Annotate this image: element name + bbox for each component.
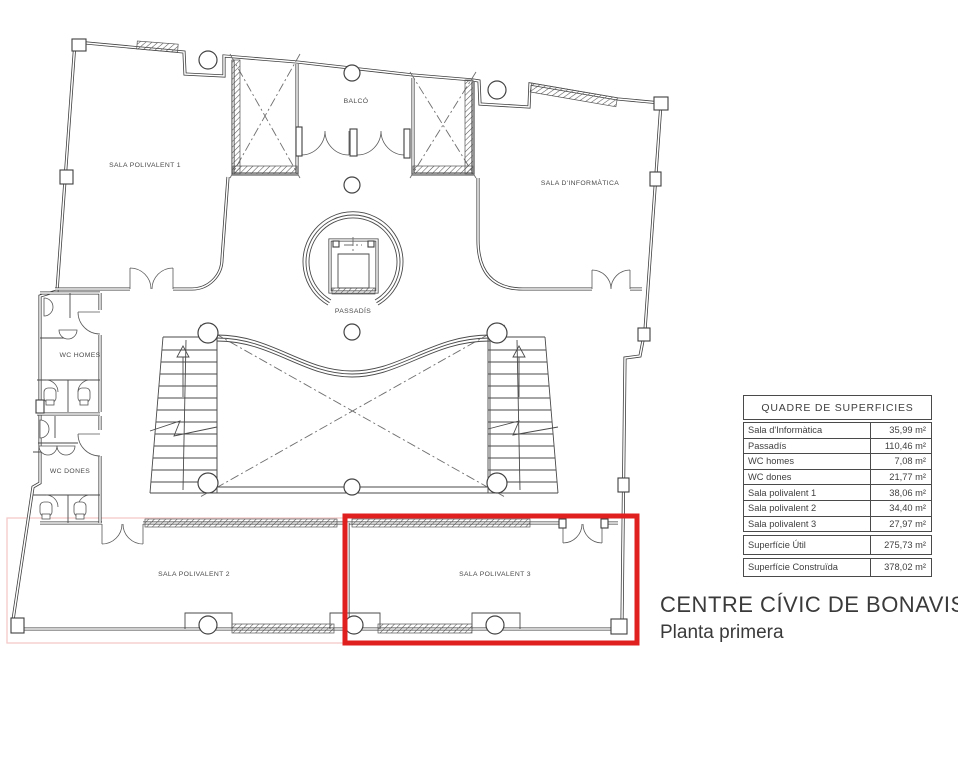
label-sala-polivalent-1: SALA POLIVALENT 1 [109,162,181,169]
row-label: Sala polivalent 1 [744,485,870,500]
row-value: 38,06 m² [870,485,931,500]
stair-hall-void [217,335,490,493]
row-value: 7,08 m² [870,454,931,469]
page-subtitle: Planta primera [660,622,958,644]
stair-up-arrow [513,346,525,397]
areas-table: QUADRE DE SUPERFICIES Sala d'Informàtica… [743,395,932,577]
label-sala-polivalent-3: SALA POLIVALENT 3 [459,571,531,578]
title-block: CENTRE CÍVIC DE BONAVISTA Planta primera [660,592,958,644]
sink [39,446,57,455]
areas-table-rows: Sala d'Informàtica 35,99 m² Passadís 110… [743,422,932,532]
stair-right [488,337,558,493]
row-value: 34,40 m² [870,501,931,516]
row-label: Superfície Construïda [744,559,870,577]
table-row: Superfície Útil 275,73 m² [744,536,931,554]
toilet [74,502,86,519]
row-label: Sala polivalent 2 [744,501,870,516]
walls [13,42,661,629]
row-label: Passadís [744,439,870,454]
areas-table-title: QUADRE DE SUPERFICIES [743,395,932,420]
wall-blocks [11,39,668,634]
sala3-door [563,524,602,543]
wc-dones-door [78,434,100,456]
summary-construida: Superfície Construïda 378,02 m² [743,558,932,578]
table-row: WC dones 21,77 m² [744,470,931,486]
table-row: Superfície Construïda 378,02 m² [744,559,931,577]
wc-homes-door [78,312,100,334]
wc-fixtures [39,298,90,519]
sala1-door [130,268,173,289]
row-label: Sala polivalent 3 [744,517,870,532]
label-passadis: PASSADÍS [335,306,371,315]
row-value: 275,73 m² [870,536,931,554]
stair-left [150,337,217,493]
row-label: WC homes [744,454,870,469]
row-value: 21,77 m² [870,470,931,485]
row-value: 110,46 m² [870,439,931,454]
page-title: CENTRE CÍVIC DE BONAVISTA [660,592,958,618]
row-label: WC dones [744,470,870,485]
label-wc-dones: WC DONES [50,468,90,475]
table-row: WC homes 7,08 m² [744,454,931,470]
row-value: 27,97 m² [870,517,931,532]
table-row: Sala polivalent 3 27,97 m² [744,517,931,532]
table-row: Sala polivalent 1 38,06 m² [744,485,931,501]
dash-dot-marks [200,54,505,497]
toilet [78,388,90,405]
label-balco: BALCÓ [344,96,369,105]
table-row: Sala polivalent 2 34,40 m² [744,501,931,517]
sala2-door [102,524,143,544]
sink [44,298,53,316]
row-value: 35,99 m² [870,423,931,438]
floor-plan-drawing: SALA POLIVALENT 1 SALA D'INFORMÀTICA BAL… [0,0,958,773]
table-row: Passadís 110,46 m² [744,439,931,455]
label-sala-informatica: SALA D'INFORMÀTICA [541,178,619,187]
label-wc-homes: WC HOMES [60,352,101,359]
label-sala-polivalent-2: SALA POLIVALENT 2 [158,571,230,578]
row-label: Sala d'Informàtica [744,423,870,438]
floor-plan-page: SALA POLIVALENT 1 SALA D'INFORMÀTICA BAL… [0,0,958,773]
row-value: 378,02 m² [870,559,931,577]
toilet [40,502,52,519]
sink [57,446,75,455]
row-label: Superfície Útil [744,536,870,554]
sink [40,420,49,438]
informatica-door [592,270,630,289]
summary-util: Superfície Útil 275,73 m² [743,535,932,555]
toilet [44,388,56,405]
stair-break-line [488,421,558,435]
table-row: Sala d'Informàtica 35,99 m² [744,423,931,439]
elevator-cab [338,254,369,288]
stair-up-arrow [177,346,189,397]
